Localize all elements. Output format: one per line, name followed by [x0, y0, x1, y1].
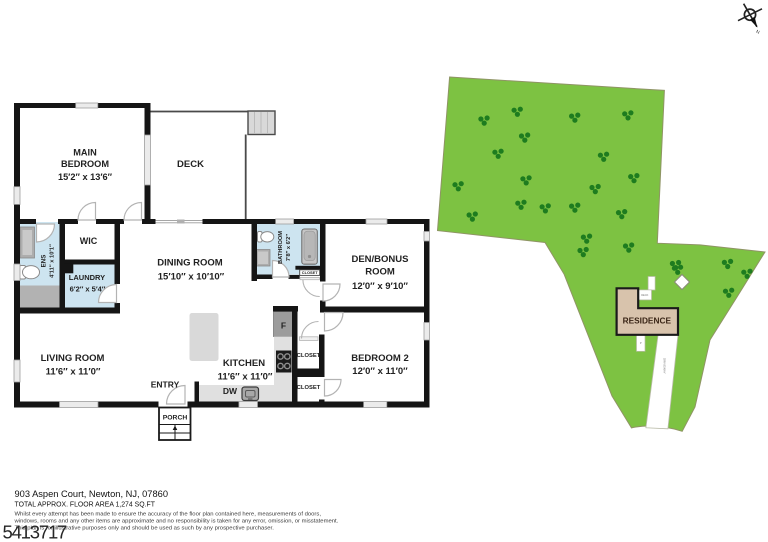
- svg-text:WIC: WIC: [80, 236, 98, 246]
- svg-text:903 Aspen Court, Newton, NJ, 0: 903 Aspen Court, Newton, NJ, 07860: [15, 489, 169, 499]
- svg-text:15′2″ x 13′6″: 15′2″ x 13′6″: [58, 172, 113, 182]
- svg-text:Whilst every attempt has been: Whilst every attempt has been made to en…: [15, 511, 322, 517]
- svg-text:DECK: DECK: [641, 293, 648, 297]
- svg-text:6′2″ x 5′4″: 6′2″ x 5′4″: [70, 285, 106, 294]
- svg-text:DECK: DECK: [177, 159, 204, 170]
- svg-text:12′0″ x 9′10″: 12′0″ x 9′10″: [352, 281, 408, 292]
- svg-text:LAUNDRY: LAUNDRY: [69, 273, 105, 282]
- svg-text:ENS: ENS: [41, 255, 48, 268]
- svg-text:CLOSET: CLOSET: [297, 353, 321, 359]
- svg-text:ENTRY: ENTRY: [151, 380, 180, 390]
- svg-text:TOTAL APPROX. FLOOR AREA 1,274: TOTAL APPROX. FLOOR AREA 1,274 SQ.FT: [15, 502, 156, 509]
- svg-text:15′10″ x 10′10″: 15′10″ x 10′10″: [158, 272, 225, 283]
- svg-text:P: P: [640, 341, 642, 345]
- svg-text:DINING ROOM: DINING ROOM: [157, 258, 223, 269]
- svg-text:DRIVEWAY: DRIVEWAY: [663, 358, 667, 374]
- svg-text:BEDROOM 2: BEDROOM 2: [351, 353, 409, 364]
- svg-text:DEN/BONUS: DEN/BONUS: [351, 254, 408, 265]
- svg-text:BATHROOM: BATHROOM: [278, 231, 284, 264]
- svg-text:11′6″ x 11′0″: 11′6″ x 11′0″: [218, 372, 273, 383]
- svg-text:PORCH: PORCH: [163, 415, 188, 422]
- svg-text:12′0″ x 11′0″: 12′0″ x 11′0″: [352, 366, 408, 377]
- svg-text:CLOSET: CLOSET: [302, 270, 318, 275]
- svg-text:5413717: 5413717: [3, 522, 68, 542]
- svg-text:11′6″ x 11′0″: 11′6″ x 11′0″: [46, 367, 101, 378]
- svg-text:MAIN: MAIN: [73, 148, 97, 158]
- svg-text:7′8″ x 6′2″: 7′8″ x 6′2″: [286, 234, 292, 261]
- svg-text:LIVING ROOM: LIVING ROOM: [41, 353, 105, 364]
- svg-text:F: F: [281, 321, 286, 331]
- svg-text:DW: DW: [223, 386, 238, 396]
- svg-text:KITCHEN: KITCHEN: [223, 358, 265, 369]
- svg-text:RESIDENCE: RESIDENCE: [623, 316, 672, 326]
- svg-text:BEDROOM: BEDROOM: [61, 159, 109, 169]
- svg-text:4′11″ x 10′1″: 4′11″ x 10′1″: [50, 244, 56, 278]
- svg-text:CLOSET: CLOSET: [297, 385, 321, 391]
- svg-text:ROOM: ROOM: [365, 267, 395, 278]
